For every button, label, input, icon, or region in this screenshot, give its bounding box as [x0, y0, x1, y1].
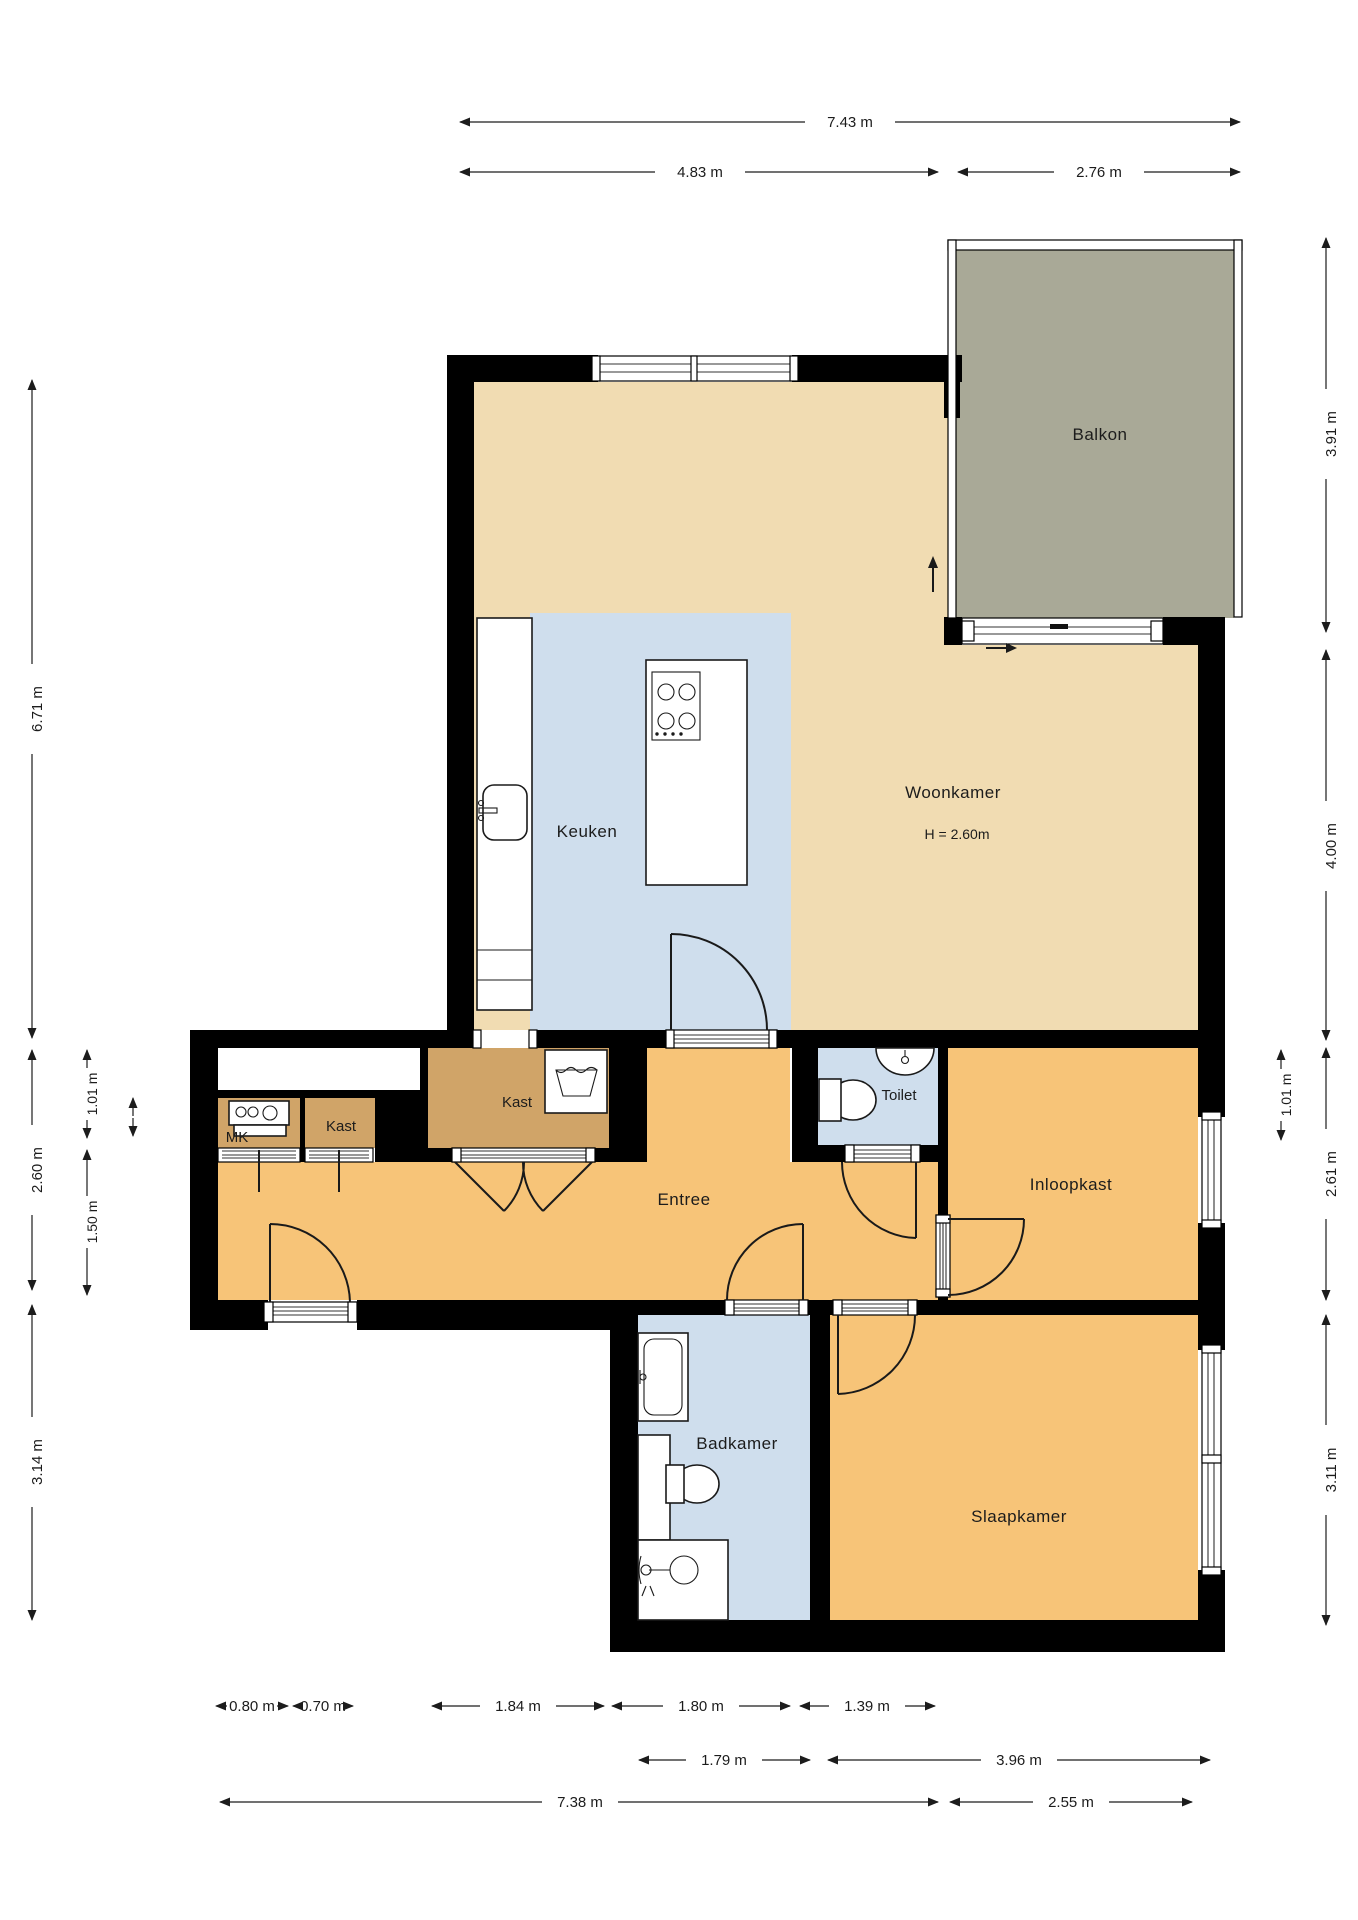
dim-label: 3.11 m: [1323, 1448, 1340, 1493]
label-balkon: Balkon: [1073, 425, 1128, 444]
dim-bottom-total: 7.38 m: [220, 1794, 938, 1811]
floor-slaapkamer: [830, 1315, 1198, 1620]
toilet-icon: [819, 1079, 876, 1121]
label-toilet: Toilet: [881, 1087, 917, 1104]
dim-right-woonkamer: 4.00 m: [1323, 650, 1340, 1040]
dim-top-total: 7.43 m: [460, 114, 1240, 131]
dim-label: 4.83 m: [677, 164, 723, 181]
dim-bottom-toilet: 1.39 m: [800, 1698, 935, 1715]
dim-left-badkamer: 3.14 m: [29, 1305, 46, 1620]
dim-label: 1.50 m: [84, 1201, 100, 1244]
dim-label: 3.14 m: [29, 1439, 46, 1485]
dim-left-inner: 1.50 m: [84, 1150, 100, 1295]
floorplan-canvas: Balkon Woonkamer H = 2.60m Keuken Kast M…: [0, 0, 1358, 1920]
bathtub-icon: [638, 1333, 688, 1421]
label-inloopkast: Inloopkast: [1030, 1175, 1113, 1194]
label-keuken: Keuken: [557, 822, 618, 841]
dim-right-slaapkamer: 3.11 m: [1323, 1315, 1340, 1625]
dim-bottom-mk: 0.80 m: [216, 1698, 288, 1715]
label-slaapkamer: Slaapkamer: [971, 1507, 1067, 1526]
window-keuken-top: [592, 356, 798, 381]
dim-label: 1.39 m: [844, 1698, 890, 1715]
dim-bottom-slaapkamer: 3.96 m: [828, 1752, 1210, 1769]
shower-icon: [638, 1540, 728, 1620]
dim-left-small: 1.01 m: [84, 1050, 100, 1138]
dim-left-total: 6.71 m: [29, 380, 46, 1038]
floors: [218, 250, 1234, 1620]
label-kast-klein: Kast: [326, 1118, 357, 1135]
washer-icon: [545, 1050, 607, 1113]
dim-bottom-rechts: 2.55 m: [950, 1794, 1192, 1811]
dim-bottom-kast: 0.70 m: [293, 1698, 353, 1715]
opening-keuken-kast: [473, 1030, 537, 1048]
dim-top-left: 4.83 m: [460, 164, 938, 181]
dim-label: 7.38 m: [557, 1794, 603, 1811]
dim-label: 2.76 m: [1076, 164, 1122, 181]
dim-label: 2.55 m: [1048, 1794, 1094, 1811]
label-mk: MK: [226, 1129, 249, 1146]
dim-label: 6.71 m: [29, 686, 46, 732]
dim-bottom-kastdeuren: 1.84 m: [432, 1698, 604, 1715]
dim-label: 1.01 m: [84, 1073, 100, 1116]
label-badkamer: Badkamer: [696, 1434, 777, 1453]
floorplan-svg: Balkon Woonkamer H = 2.60m Keuken Kast M…: [0, 0, 1358, 1920]
sliding-door-balkon: [962, 618, 1163, 644]
toilet-badkamer-icon: [666, 1465, 719, 1503]
dim-label: 0.80 m: [229, 1698, 275, 1715]
dim-label: 3.91 m: [1323, 411, 1340, 457]
floor-entree: [218, 1162, 938, 1300]
label-woonkamer: Woonkamer: [905, 783, 1001, 802]
window-inloopkast: [1202, 1112, 1221, 1228]
dim-bottom-entree-deur: 1.80 m: [612, 1698, 790, 1715]
floor-entree-ext: [647, 1048, 790, 1164]
floor-inloopkast: [948, 1048, 1198, 1300]
dim-label: 2.60 m: [29, 1147, 46, 1193]
dim-label: 0.70 m: [300, 1698, 346, 1715]
label-entree: Entree: [657, 1190, 710, 1209]
kitchen-island: [646, 660, 747, 885]
dim-label: 2.61 m: [1323, 1151, 1340, 1197]
sink-icon: [479, 785, 528, 840]
dim-label: 1.01 m: [1278, 1074, 1294, 1117]
dim-label: 7.43 m: [827, 114, 873, 131]
dim-left-entree: 2.60 m: [29, 1050, 46, 1290]
dim-label: 1.80 m: [678, 1698, 724, 1715]
window-slaapkamer: [1202, 1345, 1221, 1575]
dim-label: 4.00 m: [1323, 823, 1340, 869]
dim-label: 1.79 m: [701, 1752, 747, 1769]
dim-right-small: 1.01 m: [1278, 1050, 1294, 1140]
dim-bottom-badkamer: 1.79 m: [639, 1752, 810, 1769]
label-woonkamer-height: H = 2.60m: [925, 826, 990, 842]
dim-top-right: 2.76 m: [958, 164, 1240, 181]
dim-label: 3.96 m: [996, 1752, 1042, 1769]
label-kast-groot: Kast: [502, 1094, 533, 1111]
dim-right-inloopkast: 2.61 m: [1323, 1048, 1340, 1300]
dim-label: 1.84 m: [495, 1698, 541, 1715]
dim-right-balkon: 3.91 m: [1323, 238, 1340, 632]
